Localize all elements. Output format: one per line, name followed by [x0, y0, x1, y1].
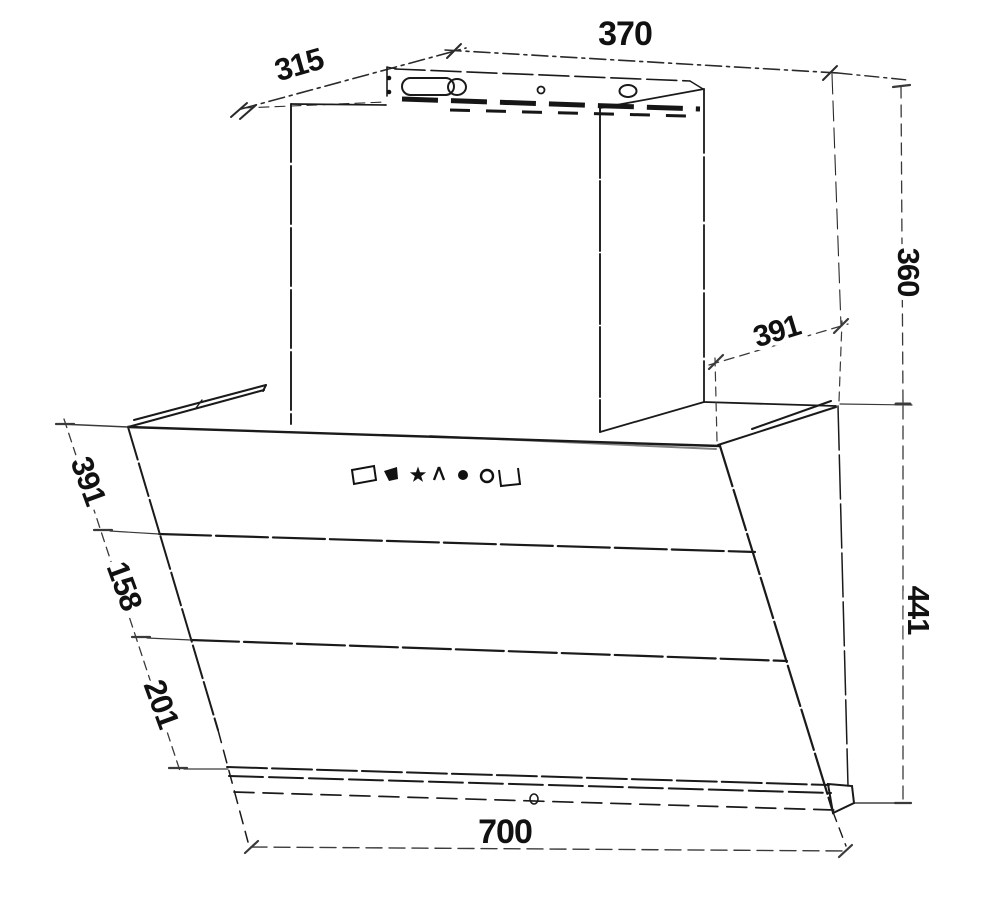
- delay-person-icon: [434, 467, 444, 480]
- dimension-chimney-height: 360: [840, 85, 926, 405]
- dimension-top-width: 370: [598, 15, 652, 53]
- ceiling-outline: [231, 44, 908, 326]
- dim-top-rear-depth-label: 391: [750, 309, 805, 354]
- dimension-body-width: 700: [245, 813, 852, 857]
- screw-hole-small: [538, 87, 545, 94]
- dimension-top-rear-depth: 391: [709, 309, 848, 441]
- bottom-rail-hole: [530, 794, 538, 804]
- touch-control-panel: [352, 466, 520, 486]
- dim-top-width-label: 370: [598, 15, 652, 53]
- glass-front: [128, 427, 846, 846]
- dim-body-height-label: 441: [901, 586, 936, 635]
- dimension-top-depth: 315: [271, 41, 328, 88]
- rivet-dot-top: [387, 76, 392, 81]
- fan-wing-icon: [384, 467, 398, 481]
- mounting-plate: [387, 67, 703, 116]
- drawing-canvas: 391 158 201 391 360 441 700 370 315: [0, 0, 1000, 915]
- dim-chimney-height-label: 360: [891, 248, 926, 297]
- glass-division-lower: [191, 640, 787, 661]
- dim-glass-top-label: 391: [64, 452, 114, 510]
- screw-hole-right: [620, 85, 637, 97]
- open-tray-icon: [499, 468, 520, 486]
- dim-body-width-label: 700: [478, 813, 532, 851]
- glass-division-upper: [159, 534, 755, 552]
- display-window-icon: [352, 466, 376, 484]
- rivet-dot-bottom: [387, 90, 392, 95]
- dimension-body-height: 441: [895, 406, 936, 803]
- hood-top: [128, 385, 911, 813]
- dim-glass-middle-label: 158: [100, 557, 150, 615]
- dim-top-depth-label: 315: [271, 41, 328, 88]
- lamp-circle-icon: [481, 470, 493, 482]
- star-icon: [410, 467, 426, 482]
- keyhole-slot: [402, 78, 454, 95]
- range-hood-dimension-drawing: 391 158 201 391 360 441 700 370 315: [0, 0, 1000, 915]
- chimney-duct: [291, 89, 704, 432]
- dim-glass-bottom-label: 201: [137, 675, 187, 733]
- slot-end-hole: [448, 79, 466, 95]
- power-dot-icon: [458, 470, 468, 480]
